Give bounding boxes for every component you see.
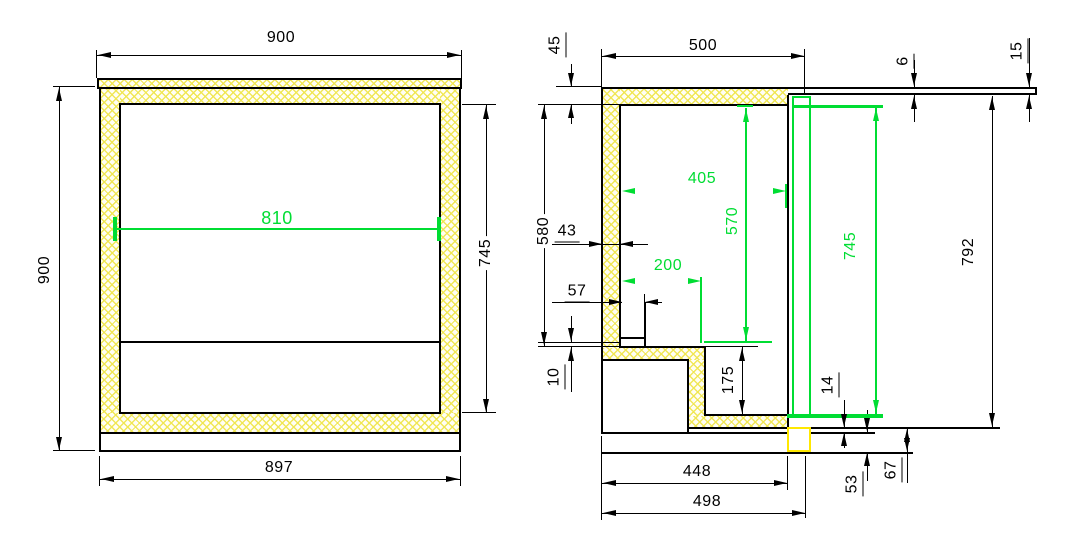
dimension-label-10: 10 (547, 365, 566, 390)
dimension-line (601, 436, 602, 520)
object-line (99, 87, 101, 434)
dimension-label-498: 498 (693, 494, 721, 510)
dimension-arrowhead (792, 510, 805, 516)
insulation-hatch (603, 89, 788, 104)
dimension-label-67: 67 (884, 458, 903, 483)
insulation-hatch (603, 89, 620, 360)
dimension-line (53, 450, 95, 451)
object-line (601, 87, 603, 434)
object-line (439, 103, 441, 414)
dimension-arrowhead (774, 480, 787, 486)
dimension-label-6: 6 (896, 53, 915, 68)
object-line (119, 103, 121, 414)
dimension-line (538, 346, 620, 347)
dimension-line-green (875, 107, 877, 414)
dimension-label-15: 15 (1010, 39, 1029, 64)
dimension-label-900: 900 (37, 256, 53, 284)
dimension-line (601, 49, 602, 87)
object-line (620, 104, 788, 106)
dimension-line (992, 96, 993, 427)
dimension-arrowhead (568, 73, 574, 86)
dimension-arrowhead (603, 510, 616, 516)
object-line (788, 93, 1037, 95)
dimension-label-570: 570 (725, 207, 741, 235)
dimension-line (96, 50, 97, 78)
dimension-arrowhead (609, 299, 622, 305)
dimension-arrowhead (791, 53, 804, 59)
dimension-arrowhead (1026, 73, 1032, 86)
dimension-arrowhead (568, 328, 574, 341)
object-line (97, 78, 462, 80)
dimension-label-14: 14 (821, 373, 840, 398)
object-line (601, 359, 689, 361)
dimension-arrowhead (603, 480, 616, 486)
object-line (704, 414, 788, 416)
dimension-label-57: 57 (565, 284, 590, 303)
dimension-arrowhead (873, 400, 879, 413)
object-line (787, 95, 789, 429)
dimension-arrowhead (645, 299, 658, 305)
dimension-arrowhead (568, 105, 574, 118)
dimension-label-43: 43 (555, 224, 580, 243)
dimension-arrowhead (688, 278, 701, 284)
dimension-arrowhead (873, 108, 879, 121)
dimension-line (602, 56, 805, 57)
dimension-line (99, 456, 100, 486)
dimension-line-green (437, 217, 441, 241)
dimension-line (461, 50, 462, 78)
insulation-hatch (101, 413, 459, 433)
dimension-arrowhead (1026, 96, 1032, 109)
dimension-arrowhead (739, 400, 745, 413)
door-seal-marker (787, 427, 811, 452)
dimension-line (97, 55, 462, 56)
dimension-arrowhead (98, 52, 111, 58)
dimension-arrowhead (864, 453, 870, 466)
dimension-line (706, 346, 758, 347)
object-line (687, 359, 689, 434)
insulation-hatch (101, 89, 459, 104)
object-line (120, 341, 440, 343)
dimension-arrowhead (743, 109, 749, 122)
object-line (99, 450, 461, 452)
dimension-label-448: 448 (683, 464, 711, 480)
dimension-arrowhead (989, 97, 995, 110)
dimension-line-green (745, 108, 747, 341)
dimension-arrowhead (989, 413, 995, 426)
dimension-arrowhead (447, 52, 460, 58)
dimension-arrowhead (568, 348, 574, 361)
dimension-arrowhead (446, 476, 459, 482)
object-line (620, 337, 646, 339)
dimension-line (602, 513, 806, 514)
object-line (602, 87, 1037, 89)
dimension-label-900: 900 (267, 30, 295, 46)
insulation-hatch (99, 80, 461, 87)
object-line (704, 346, 706, 416)
dimension-line-green (700, 277, 702, 343)
dimension-line (556, 86, 602, 87)
dimension-line-green (704, 341, 772, 343)
dimension-label-500: 500 (689, 38, 717, 54)
dimension-label-580: 580 (536, 214, 552, 248)
dimension-line-green (737, 105, 753, 107)
dimension-arrowhead (841, 414, 847, 427)
dimension-arrowhead (743, 327, 749, 340)
insulation-hatch (689, 360, 705, 416)
dimension-line (59, 87, 60, 451)
dimension-line (787, 456, 788, 490)
dimension-line (462, 412, 496, 413)
dimension-line (462, 104, 496, 105)
dimension-label-53: 53 (845, 472, 864, 497)
object-line (99, 432, 461, 434)
object-line (119, 103, 441, 105)
dimension-arrowhead (911, 96, 917, 109)
dimension-label-200: 200 (654, 258, 682, 274)
dimension-arrowhead (483, 399, 489, 412)
dimension-label-405: 405 (688, 171, 716, 187)
dimension-arrowhead (773, 188, 786, 194)
dimension-arrowhead (904, 438, 910, 451)
dimension-label-810: 810 (261, 209, 293, 227)
dimension-line (538, 342, 621, 343)
object-line (644, 302, 646, 347)
object-line (97, 87, 462, 89)
dimension-arrowhead (541, 106, 547, 119)
cad-drawing-canvas: 9009008107458975004561558043405570745792… (0, 0, 1081, 551)
dimension-label-175: 175 (721, 366, 737, 394)
dimension-line-green (115, 228, 440, 230)
dimension-line (460, 456, 461, 486)
object-line (620, 346, 706, 348)
object-line (459, 87, 461, 434)
insulation-hatch (101, 89, 120, 433)
dimension-arrowhead (56, 437, 62, 450)
dimension-line (602, 483, 788, 484)
dimension-arrowhead (56, 88, 62, 101)
dimension-line (805, 456, 806, 518)
dimension-line (804, 49, 805, 93)
dimension-label-45: 45 (548, 33, 567, 58)
dimension-arrowhead (603, 53, 616, 59)
door-panel (792, 96, 811, 418)
dimension-arrowhead (620, 241, 633, 247)
dimension-arrowhead (622, 278, 635, 284)
dimension-label-745: 745 (478, 236, 494, 270)
object-line (619, 104, 621, 348)
dimension-label-745: 745 (843, 232, 859, 260)
dimension-arrowhead (589, 241, 602, 247)
dimension-arrowhead (841, 433, 847, 446)
object-line (1035, 87, 1037, 95)
object-line (119, 412, 441, 414)
dimension-line (53, 86, 95, 87)
dimension-arrowhead (864, 418, 870, 431)
object-line (601, 432, 875, 434)
dimension-arrowhead (101, 476, 114, 482)
dimension-line-green (113, 217, 117, 241)
dimension-arrowhead (541, 332, 547, 345)
dimension-label-792: 792 (961, 235, 977, 269)
dimension-label-897: 897 (265, 460, 293, 476)
dimension-arrowhead (911, 73, 917, 86)
dimension-arrowhead (483, 106, 489, 119)
dimension-arrowhead (739, 348, 745, 361)
dimension-line (538, 104, 620, 105)
dimension-arrowhead (622, 188, 635, 194)
dimension-line (100, 479, 461, 480)
insulation-hatch (440, 89, 459, 433)
